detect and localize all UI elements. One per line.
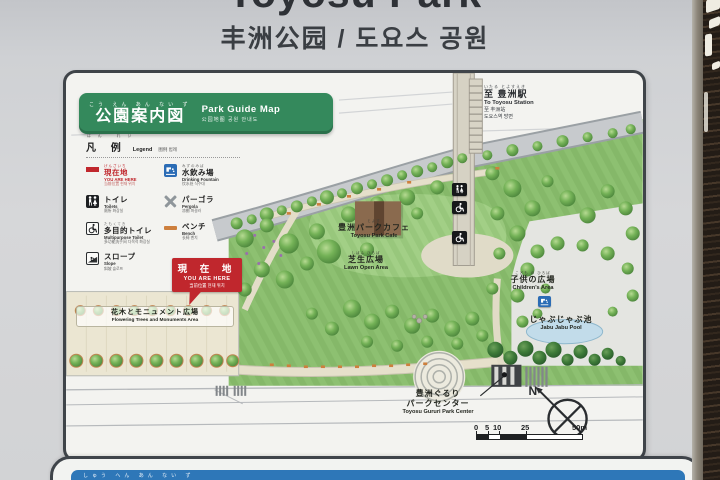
legend-slope-jp: スロープ	[104, 252, 136, 261]
bench-icon	[164, 222, 179, 245]
multipurpose-toilet-icon	[86, 222, 101, 245]
area-guide-header: しゅう へん あん ない ず	[71, 470, 685, 480]
legend-item-slope: スロープ Slope 斜坡 슬로프	[86, 252, 164, 271]
legend-yah-jp: 現在地	[104, 168, 137, 177]
sign-subtitle: 丰洲公园 / 도요스 공원	[20, 19, 690, 55]
legend-header-en: Legend	[133, 147, 153, 154]
map-header: こう えん あん ない ず 公園案内図 Park Guide Map 公园地图 …	[79, 93, 333, 134]
map-header-furigana: こう えん あん ない ず	[89, 101, 192, 108]
legend-bench-sub: 长椅 벤치	[182, 236, 206, 241]
legend-toilets-jp: トイレ	[104, 195, 128, 204]
yah-box-sub: 当前位置 현재 위치	[173, 283, 241, 289]
map-header-title: 公園案内図	[89, 108, 192, 126]
you-are-here-box: 現 在 地 YOU ARE HERE 当前位置 현재 위치	[172, 258, 242, 292]
legend-item-multipurpose-toilet: たもくてき 多目的トイレ Multipurpose Toilet 多功能洗手间 …	[86, 222, 164, 245]
map-label-park-center: 豊洲ぐるり パークセンター Toyosu Gururi Park Center	[368, 389, 508, 416]
map-label-flowering: 花木とモニュメント広場 Flowering Trees and Monument…	[76, 306, 234, 327]
pool-label-en: Jabu Jabu Pool	[496, 325, 626, 332]
area-guide-board-partial: しゅう へん あん ない ず	[50, 456, 702, 480]
lawn-label-jp: 芝生広場	[311, 255, 421, 265]
park-center-label-jp2: パークセンター	[368, 399, 508, 409]
legend-header-jp: 凡 例	[86, 139, 127, 154]
cafe-label-en: Toyosu Park Cafe	[314, 233, 434, 240]
legend-pergola-sub: 凉棚 퍼걸러	[182, 209, 214, 214]
slope-icon	[86, 252, 101, 271]
legend-mptoilet-jp: 多目的トイレ	[104, 226, 152, 235]
legend-fountain-jp: 水飲み場	[182, 168, 219, 177]
legend-fountain-sub: 饮水处 식수대	[182, 182, 219, 187]
legend-item-bench: ベンチ Bench 长椅 벤치	[164, 222, 240, 245]
legend-toilets-sub: 厕所 화장실	[104, 209, 128, 214]
legend-header-sub: 图例 범례	[158, 147, 177, 154]
legend-item-toilets: トイレ Toilets 厕所 화장실	[86, 195, 164, 214]
map-label-lawn: しばふ ひろば 芝生広場 Lawn Open Area	[311, 251, 421, 272]
wheelchair-icon	[452, 201, 467, 214]
pool-label-jp: じゃぶじゃぶ池	[496, 315, 626, 325]
tree-trunk	[703, 0, 720, 480]
toilets-icon	[86, 195, 101, 214]
compass-north-label: N	[528, 384, 537, 398]
legend-yah-sub: 当前位置 현재 위치	[104, 182, 137, 187]
sign-head: Toyosu Park 丰洲公园 / 도요스 공원	[20, 0, 690, 55]
park-guide-map-board: N こう えん あん ない ず 公園案内図 Park Guide Map 公园地…	[63, 70, 646, 462]
legend: はん れい 凡 例 Legend 图例 범례 げんざいち 現在地 YOU ARE…	[86, 139, 240, 271]
to-toyosu-station-block: いたる とよすえき 至 豊洲駅 To Toyosu Station 至 丰洲站 …	[484, 84, 604, 120]
bottom-streets	[66, 385, 642, 426]
map-label-cafe: とよす 豊洲パークカフェ Toyosu Park Cafe	[314, 219, 434, 240]
sign-title: Toyosu Park	[20, 0, 690, 14]
park-center-label-en: Toyosu Gururi Park Center	[368, 409, 508, 416]
scale-bar: 0 5 10 25 50m	[476, 423, 606, 445]
legend-item-pergola: パーゴラ Pergola 凉棚 퍼걸러	[164, 195, 240, 214]
map-header-title-en: Park Guide Map	[202, 104, 281, 115]
park-center-label-jp1: 豊洲ぐるり	[368, 389, 508, 399]
cafe-label-jp: 豊洲パークカフェ	[314, 223, 434, 233]
yah-box-jp: 現 在 地	[173, 261, 241, 275]
park-sign-photo: Toyosu Park 丰洲公园 / 도요스 공원	[0, 0, 720, 480]
legend-pergola-jp: パーゴラ	[182, 195, 214, 204]
legend-header-furigana: はん れい	[87, 134, 138, 139]
station-label-ko: 도요스역 방면	[484, 114, 604, 120]
map-header-title-sub: 公园地图 공원 안내도	[202, 116, 281, 123]
wheelchair-icon	[452, 231, 467, 244]
scale-bar-track	[476, 434, 583, 440]
pergola-icon	[164, 195, 179, 214]
legend-item-drinking-fountain: みずのみば 水飲み場 Drinking Fountain 饮水处 식수대	[164, 164, 240, 187]
drinking-fountain-icon	[538, 296, 551, 307]
lawn-label-en: Lawn Open Area	[311, 265, 421, 272]
toilets-icon	[452, 183, 467, 196]
legend-bench-jp: ベンチ	[182, 222, 206, 231]
flowering-label-en: Flowering Trees and Monuments Area	[79, 318, 231, 324]
legend-item-you-are-here: げんざいち 現在地 YOU ARE HERE 当前位置 현재 위치	[86, 164, 164, 187]
map-label-pool: じゃぶじゃぶ池 Jabu Jabu Pool	[496, 315, 626, 332]
scale-label-10: 10	[493, 423, 501, 432]
legend-mptoilet-sub: 多功能洗手间 다목적 화장실	[104, 240, 152, 245]
legend-slope-sub: 斜坡 슬로프	[104, 267, 136, 272]
drinking-fountain-icon	[164, 164, 179, 187]
yah-box-en: YOU ARE HERE	[173, 276, 241, 282]
legend-divider	[86, 157, 240, 158]
flowering-label-jp: 花木とモニュメント広場	[79, 309, 231, 318]
you-are-here-marker	[86, 164, 101, 187]
map-label-children: こども の ひろば 子供の広場 Children's Area	[478, 271, 588, 292]
station-label-jp: 至 豊洲駅	[484, 89, 604, 100]
children-label-en: Children's Area	[478, 285, 588, 292]
children-label-jp: 子供の広場	[478, 275, 588, 285]
